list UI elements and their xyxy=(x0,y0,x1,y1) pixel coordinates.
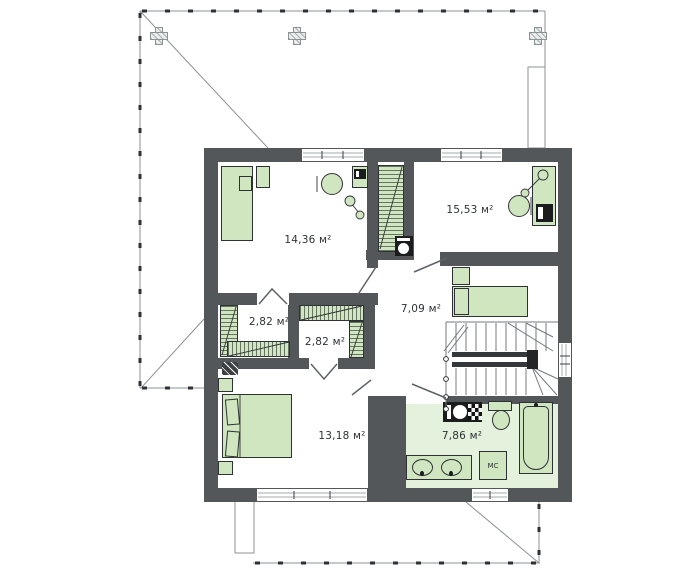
shelf-icon xyxy=(299,305,364,321)
wall xyxy=(338,358,375,369)
wall xyxy=(218,293,257,305)
monitor-screen xyxy=(538,207,543,219)
window xyxy=(302,149,364,161)
wall xyxy=(204,358,309,369)
monitor-screen xyxy=(356,171,359,177)
nightstand-icon xyxy=(218,378,233,392)
boiler-detail xyxy=(397,238,410,241)
faucet-icon xyxy=(534,403,538,407)
roof-column-marker-icon xyxy=(150,27,168,45)
room-area-label: 13,18 м² xyxy=(294,430,390,442)
room-area-label: 2,82 м² xyxy=(287,336,363,348)
vent-icon xyxy=(222,362,238,375)
room-area-label: 7,09 м² xyxy=(383,303,459,315)
floor-plan: МС xyxy=(0,0,700,575)
roof-column-marker-icon xyxy=(288,27,306,45)
wall xyxy=(204,148,218,502)
wall xyxy=(368,396,406,488)
toilet-icon xyxy=(492,410,510,430)
room-area-label: 2,82 м² xyxy=(231,316,307,328)
bathtub-basin xyxy=(523,406,549,470)
window xyxy=(441,149,502,161)
nightstand-icon xyxy=(452,267,470,285)
wall xyxy=(440,252,558,266)
table-icon xyxy=(321,173,343,195)
wall xyxy=(204,148,572,162)
washer-detail xyxy=(447,405,451,419)
washing-machine-box: МС xyxy=(479,451,507,480)
shelf-icon xyxy=(227,341,290,357)
wall xyxy=(289,293,378,305)
tap-icon xyxy=(420,471,424,476)
pillow-icon xyxy=(225,398,240,425)
room-area-label: 15,53 м² xyxy=(422,204,518,216)
washer-door-icon xyxy=(453,405,467,419)
nightstand-icon xyxy=(256,166,270,188)
pillow-icon xyxy=(225,430,240,457)
room-area-label: 14,36 м² xyxy=(260,234,356,246)
window xyxy=(559,343,571,377)
roof-column-marker-icon xyxy=(529,27,547,45)
appliance-hatch xyxy=(468,404,482,420)
boiler-dial xyxy=(398,243,409,254)
window xyxy=(257,489,367,501)
pillow-icon xyxy=(239,176,252,191)
tap-icon xyxy=(449,471,453,476)
window xyxy=(472,489,508,501)
nightstand-icon xyxy=(218,461,233,475)
wall xyxy=(558,148,572,502)
room-area-label: 7,86 м² xyxy=(414,430,510,442)
